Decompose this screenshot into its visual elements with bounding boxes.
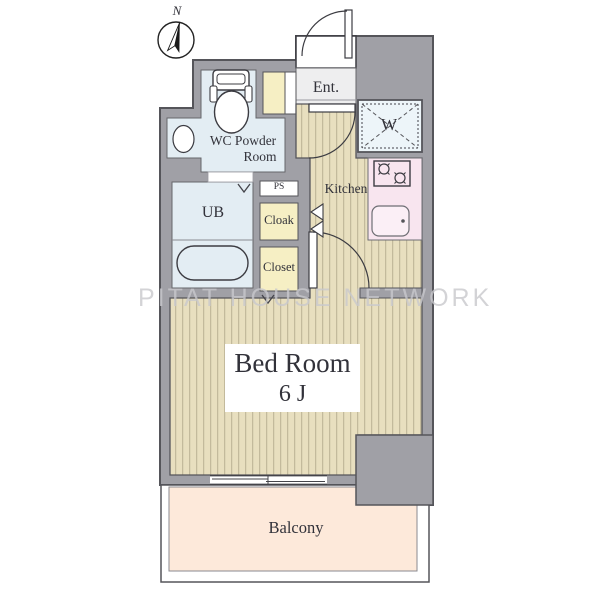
room-label-bedroom: Bed Room — [234, 348, 350, 379]
window-symbol — [210, 475, 327, 485]
bathtub-icon — [177, 246, 248, 280]
room-label-kitchen: Kitchen — [318, 181, 374, 197]
compass-north-label: N — [168, 4, 186, 19]
room-label-washer: W — [374, 115, 404, 135]
bedroom-size-label: 6 J — [279, 381, 306, 408]
bedroom-label-box: Bed Room 6 J — [225, 344, 360, 412]
washbasin-icon — [173, 126, 194, 153]
entrance-counter — [285, 72, 296, 114]
room-label-wc-powder-line2: Room — [230, 149, 290, 165]
sink-icon — [372, 206, 409, 236]
bath-door-opening — [208, 172, 253, 182]
room-label-entrance: Ent. — [296, 79, 356, 97]
watermark-text: PITAT HOUSE NETWORK — [138, 284, 474, 313]
room-label-cloak: Cloak — [258, 213, 300, 227]
floorplan-canvas: N Ent. W WC Powder Room UB PS Cloak Clos… — [0, 0, 600, 600]
shoe-cabinet — [263, 72, 285, 114]
room-label-unit-bath: UB — [183, 204, 243, 222]
room-label-closet: Closet — [257, 260, 301, 274]
room-label-wc-powder-line1: WC Powder — [198, 133, 288, 149]
room-label-balcony: Balcony — [244, 519, 348, 538]
compass-icon — [158, 21, 194, 58]
room-label-pipe-space: PS — [260, 182, 298, 193]
building-notch — [356, 435, 433, 505]
